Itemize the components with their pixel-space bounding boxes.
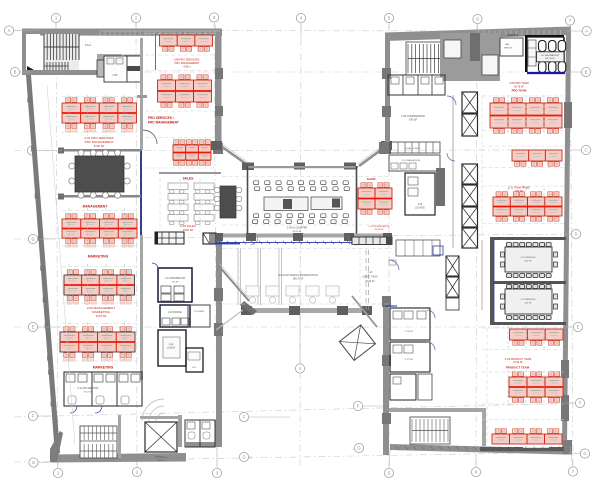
svg-text:91.99 SF: 91.99 SF (513, 361, 523, 364)
svg-text:E: E (577, 325, 580, 330)
svg-text:2-08 AL CHARTER: 2-08 AL CHARTER (287, 227, 308, 230)
svg-text:2-17 WORKSTATION: 2-17 WORKSTATION (369, 225, 390, 228)
svg-text:2-22 MEETING: 2-22 MEETING (521, 257, 536, 259)
svg-text:200 SF: 200 SF (157, 460, 165, 462)
svg-text:ROOM 2-1: ROOM 2-1 (155, 456, 167, 459)
svg-text:F: F (579, 401, 582, 406)
svg-text:2-16: 2-16 (418, 204, 423, 206)
svg-text:PRC MANAGEMENT: PRC MANAGEMENT (175, 61, 200, 65)
svg-text:LUNCH: LUNCH (167, 348, 175, 350)
svg-text:2-09 PRO TEAM: 2-09 PRO TEAM (509, 81, 528, 85)
svg-text:9.95 SF: 9.95 SF (409, 120, 418, 122)
svg-text:G: G (583, 451, 586, 456)
svg-text:915 SF: 915 SF (524, 303, 532, 305)
svg-text:2-27 WC: 2-27 WC (405, 359, 414, 361)
svg-text:E: E (32, 325, 35, 330)
svg-text:MANAGEMENT: MANAGEMENT (83, 205, 109, 209)
svg-text:LOUNGE: LOUNGE (415, 208, 425, 210)
svg-text:PRODUCT TEAM: PRODUCT TEAM (506, 366, 530, 370)
svg-text:95.09 SF: 95.09 SF (293, 231, 303, 233)
svg-text:1540 SF: 1540 SF (183, 228, 194, 232)
svg-text:175 SF: 175 SF (171, 282, 179, 284)
svg-text:2-21 MEETING: 2-21 MEETING (521, 299, 536, 301)
svg-text:2-06 COMPRESSOR: 2-06 COMPRESSOR (401, 115, 425, 118)
svg-text:PM 518 SF: PM 518 SF (545, 58, 555, 60)
svg-text:A R E A: A R E A (508, 33, 520, 37)
svg-text:2-26 WC: 2-26 WC (405, 331, 414, 333)
svg-text:SMART DESK: SMART DESK (362, 276, 378, 279)
svg-text:90.98 SF: 90.98 SF (365, 281, 375, 283)
svg-text:4135 SF: 4135 SF (94, 144, 105, 148)
svg-text:LAB: LAB (505, 43, 510, 46)
svg-text:4.95 m: 4.95 m (183, 66, 190, 69)
svg-text:915 SF: 915 SF (524, 261, 532, 263)
svg-text:A: A (8, 28, 11, 33)
svg-text:C: C (584, 148, 587, 153)
svg-text:2-15 FRIDGE: 2-15 FRIDGE (168, 312, 182, 314)
svg-text:2-13 WASHROOM: 2-13 WASHROOM (165, 277, 185, 280)
svg-text:F: F (243, 415, 246, 420)
svg-text:165.71 SF: 165.71 SF (293, 279, 304, 281)
svg-text:2C-24 AP DESIGN WORKSTATION: 2C-24 AP DESIGN WORKSTATION (278, 274, 318, 277)
svg-text:LTG: LTG (192, 367, 196, 369)
svg-text:2-05: 2-05 (113, 74, 118, 77)
svg-text:ALIGN: ALIGN (367, 177, 376, 181)
svg-text:G: G (242, 455, 245, 460)
svg-text:G: G (32, 460, 35, 465)
svg-text:B: B (14, 70, 17, 75)
svg-text:2-12: 2-12 (169, 344, 174, 346)
svg-text:LAB PRO SERVICES /: LAB PRO SERVICES / (174, 58, 201, 62)
svg-text:D: D (574, 232, 577, 237)
svg-text:PILA: PILA (85, 43, 92, 47)
svg-text:MARKETING: MARKETING (88, 255, 109, 259)
svg-text:D: D (31, 237, 34, 242)
svg-text:MEROS: MEROS (504, 48, 513, 50)
svg-text:B: B (585, 70, 588, 75)
svg-text:31.99 SF: 31.99 SF (375, 229, 385, 231)
svg-text:PRO TEAM: PRO TEAM (512, 89, 527, 93)
svg-text:2-20: 2-20 (368, 271, 373, 274)
svg-text:2-10A LOCKER: 2-10A LOCKER (404, 147, 420, 150)
svg-text:A: A (585, 29, 588, 34)
svg-text:SALES: SALES (183, 177, 194, 181)
svg-text:2-16 MEET: 2-16 MEET (193, 311, 205, 313)
svg-text:75.07 SF: 75.07 SF (84, 392, 94, 394)
svg-text:F: F (32, 414, 35, 419)
svg-text:MARKETING: MARKETING (93, 366, 114, 370)
svg-text:3175 SF: 3175 SF (96, 314, 107, 318)
svg-text:2-14 WC MEETING: 2-14 WC MEETING (78, 387, 99, 390)
svg-text:PRC MANAGEMENT: PRC MANAGEMENT (148, 121, 179, 125)
svg-text:PRO SERVICES /: PRO SERVICES / (148, 116, 174, 120)
svg-text:2-07 LAB SMARTEST: 2-07 LAB SMARTEST (541, 54, 561, 57)
svg-text:2-10 WASHROOM: 2-10 WASHROOM (402, 159, 420, 162)
svg-text:F: F (357, 404, 360, 409)
svg-text:G: G (357, 446, 360, 451)
